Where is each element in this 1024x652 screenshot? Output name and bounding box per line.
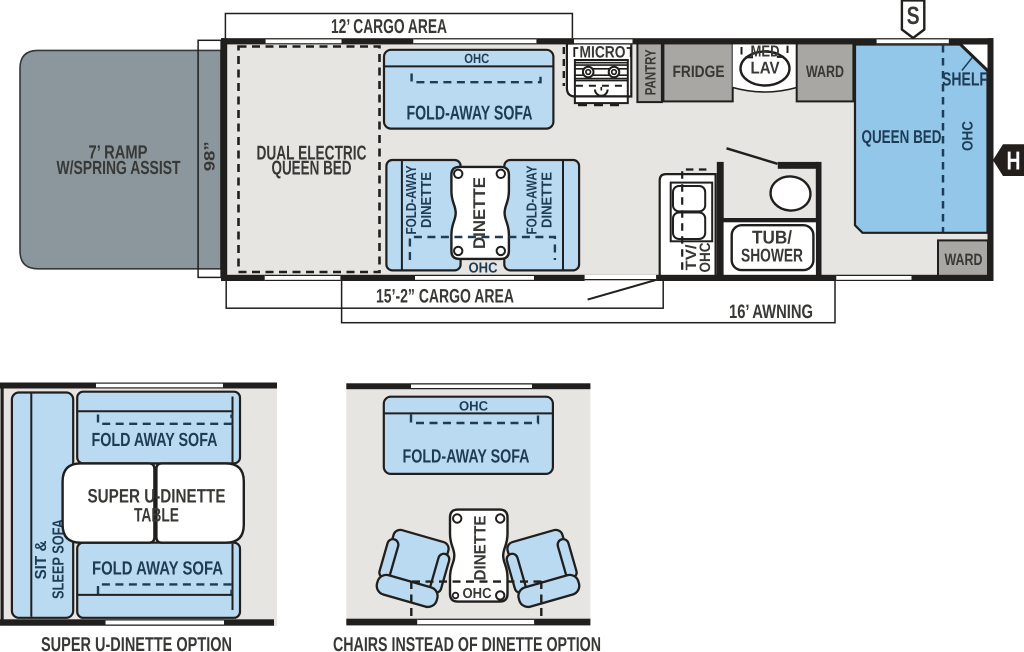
svg-text:SUPER U-DINETTE OPTION: SUPER U-DINETTE OPTION	[41, 634, 232, 652]
svg-text:WARD: WARD	[806, 63, 844, 81]
svg-text:SHOWER: SHOWER	[741, 244, 803, 265]
svg-text:FOLD AWAY SOFA: FOLD AWAY SOFA	[92, 558, 223, 579]
svg-text:98”: 98”	[202, 141, 219, 171]
svg-text:OHC: OHC	[469, 260, 498, 276]
svg-text:PANTRY: PANTRY	[642, 49, 659, 95]
svg-text:CHAIRS INSTEAD OF DINETTE OPTI: CHAIRS INSTEAD OF DINETTE OPTION	[333, 634, 601, 652]
svg-text:WARD: WARD	[945, 251, 983, 269]
svg-text:TABLE: TABLE	[134, 504, 179, 526]
svg-text:OHC: OHC	[464, 51, 489, 66]
svg-text:12’ CARGO AREA: 12’ CARGO AREA	[331, 16, 447, 38]
svg-text:S: S	[907, 2, 920, 30]
svg-text:SHELF: SHELF	[942, 70, 988, 91]
svg-text:DINETTE: DINETTE	[539, 172, 555, 228]
svg-text:H: H	[1007, 146, 1021, 176]
svg-text:MICRO: MICRO	[580, 44, 626, 62]
svg-text:LAV: LAV	[751, 59, 781, 78]
svg-text:FOLD-AWAY: FOLD-AWAY	[404, 165, 420, 234]
svg-text:OHC: OHC	[697, 242, 714, 272]
svg-text:FOLD AWAY SOFA: FOLD AWAY SOFA	[92, 430, 218, 451]
svg-text:FOLD-AWAY SOFA: FOLD-AWAY SOFA	[407, 102, 533, 124]
svg-text:QUEEN BED: QUEEN BED	[862, 126, 942, 147]
svg-text:W/SPRING ASSIST: W/SPRING ASSIST	[57, 158, 181, 179]
svg-text:OHC: OHC	[463, 586, 492, 602]
svg-text:16’ AWNING: 16’ AWNING	[729, 301, 813, 323]
svg-text:FOLD-AWAY: FOLD-AWAY	[524, 165, 540, 234]
svg-text:SIT &: SIT &	[33, 540, 50, 579]
svg-text:QUEEN BED: QUEEN BED	[272, 157, 352, 179]
svg-text:15’-2” CARGO AREA: 15’-2” CARGO AREA	[376, 285, 514, 307]
svg-text:FOLD-AWAY SOFA: FOLD-AWAY SOFA	[403, 446, 530, 467]
svg-text:DINETTE: DINETTE	[419, 172, 435, 228]
svg-text:OHC: OHC	[459, 398, 488, 413]
svg-text:FRIDGE: FRIDGE	[673, 63, 725, 81]
svg-text:OHC: OHC	[960, 121, 977, 151]
svg-text:DINETTE: DINETTE	[472, 516, 490, 581]
